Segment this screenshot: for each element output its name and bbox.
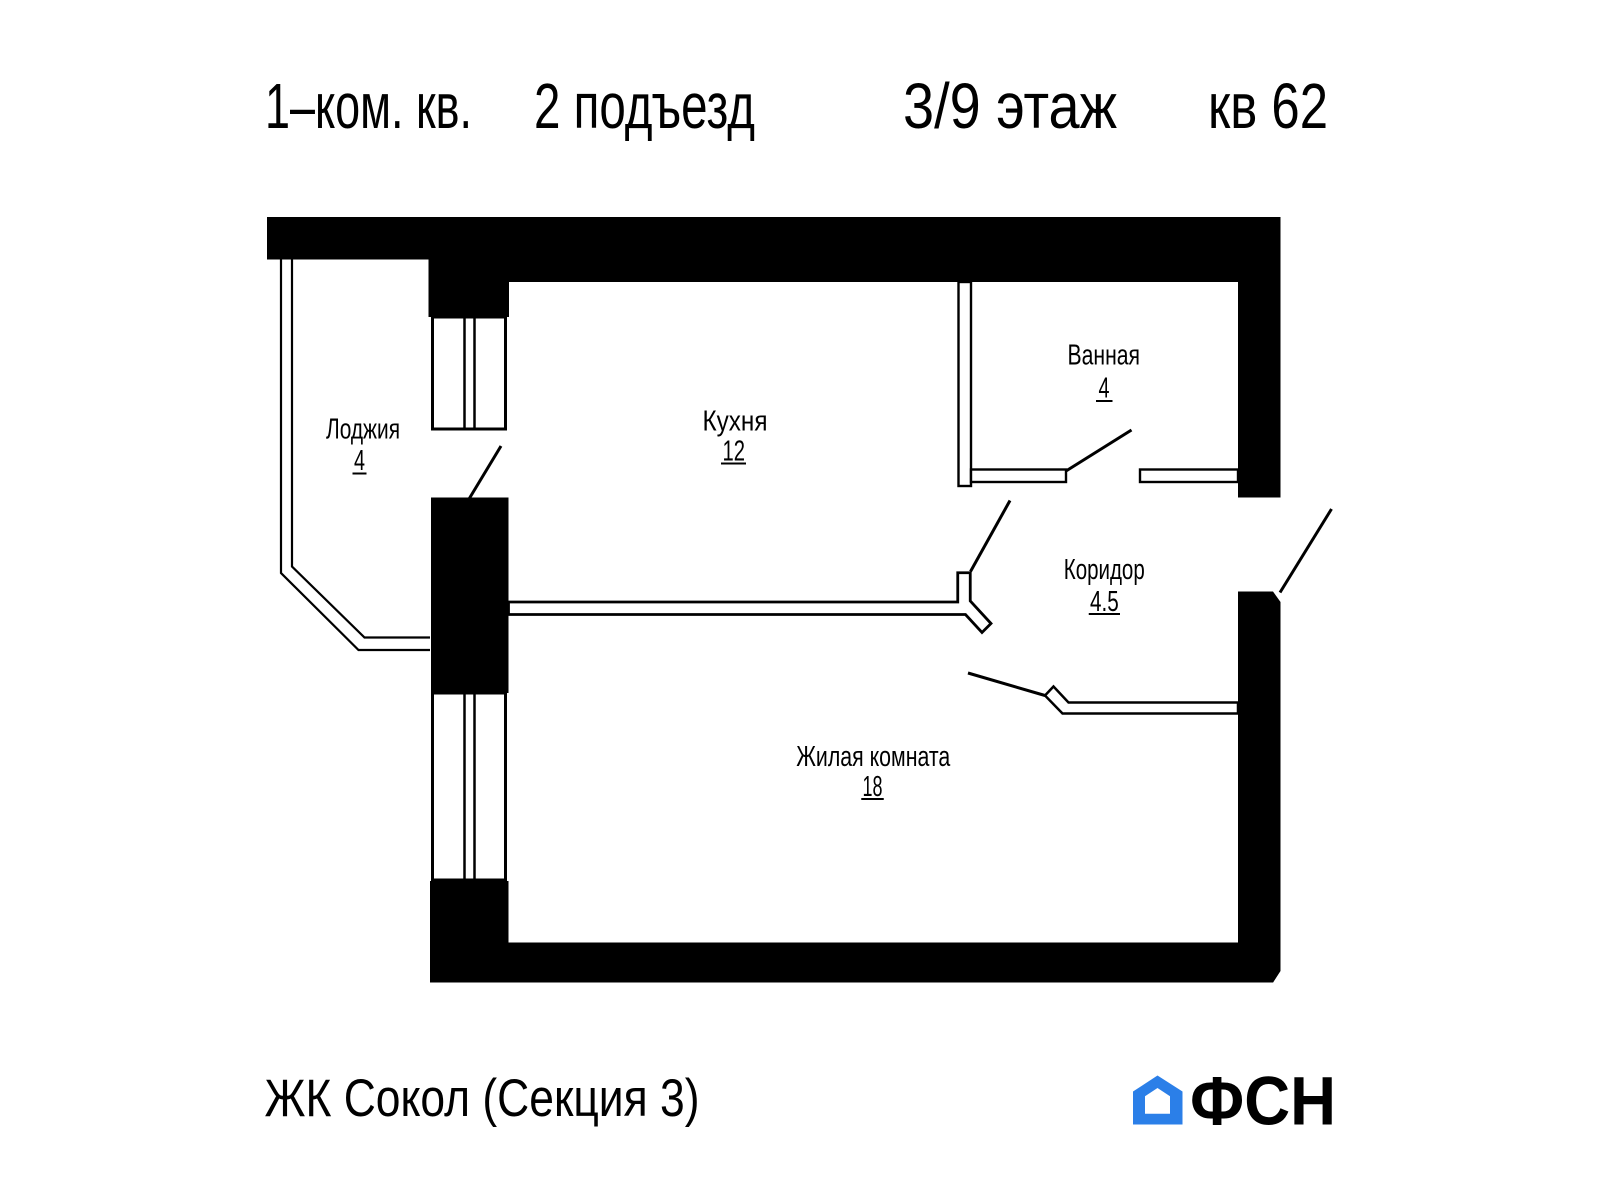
svg-text:4: 4 — [1099, 373, 1110, 405]
svg-text:Ванная: Ванная — [1068, 340, 1141, 372]
svg-text:3/9 этаж: 3/9 этаж — [903, 70, 1117, 142]
svg-text:1–ком. кв.: 1–ком. кв. — [265, 70, 472, 142]
svg-text:2 подъезд: 2 подъезд — [534, 70, 755, 142]
svg-text:кв 62: кв 62 — [1208, 70, 1328, 142]
svg-text:ФСН: ФСН — [1190, 1063, 1336, 1140]
svg-text:Лоджия: Лоджия — [326, 414, 400, 446]
svg-text:4: 4 — [354, 445, 365, 477]
svg-text:Коридор: Коридор — [1064, 554, 1145, 586]
svg-text:Жилая комната: Жилая комната — [796, 741, 951, 773]
svg-text:ЖК Сокол (Секция 3): ЖК Сокол (Секция 3) — [265, 1069, 700, 1128]
svg-text:Кухня: Кухня — [703, 406, 768, 438]
